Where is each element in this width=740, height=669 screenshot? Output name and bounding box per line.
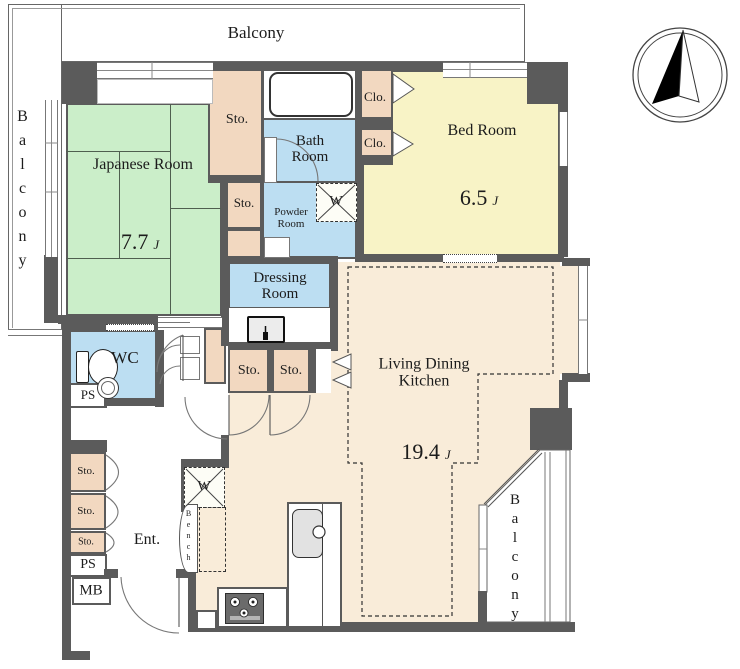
storage-ent-1-label: Sto. — [77, 465, 94, 477]
ldk-size-value: 19.4 — [401, 439, 440, 464]
powder-label-line2: Room — [274, 219, 308, 231]
floor-plan: Balcony Balcony Balcony Japanese Room 7.… — [0, 0, 740, 669]
bath-room-label: Bath Room — [292, 133, 329, 165]
balcony-left-label: Balcony — [13, 108, 31, 276]
closet-1-label: Clo. — [364, 89, 386, 105]
ent-label: Ent. — [134, 531, 160, 549]
faucet-icon — [263, 326, 268, 340]
japanese-room-size-value: 7.7 — [121, 229, 149, 254]
storage-ent-2-label: Sto. — [77, 505, 94, 517]
balcony-bottom-right — [478, 449, 570, 624]
meter-box-label: MB — [79, 583, 102, 600]
washer-powder-label: W — [329, 194, 342, 210]
pipe-space-1-label: PS — [81, 387, 95, 403]
japanese-room-label: Japanese Room — [93, 156, 193, 174]
door-triangles — [333, 74, 414, 388]
bath-label-line2: Room — [292, 149, 329, 165]
bed-room-size-value: 6.5 — [460, 185, 488, 210]
size-unit: J — [492, 193, 498, 208]
bath-label-line1: Bath — [292, 133, 329, 149]
pipe-space-2-label: PS — [80, 557, 96, 573]
storage-ent-3-label: Sto. — [78, 537, 94, 548]
bed-room-size: 6.5J — [460, 185, 498, 211]
closet-2-label: Clo. — [364, 135, 386, 151]
storage-hall-b-label: Sto. — [280, 363, 302, 379]
storage-small-label: Sto. — [234, 195, 255, 211]
dressing-room-label: Dressing Room — [253, 270, 306, 302]
dressing-label-line2: Room — [253, 286, 306, 302]
ldk-label-line2: Kitchen — [378, 373, 469, 390]
japanese-room-size: 7.7J — [121, 229, 159, 255]
washer-kitchen-label: W — [197, 479, 210, 495]
bench-label: Bench — [184, 509, 193, 564]
balcony-top-label: Balcony — [228, 23, 285, 43]
stove-burners-icon — [230, 598, 260, 621]
compass-icon — [633, 28, 727, 122]
dressing-label-line1: Dressing — [253, 270, 306, 286]
washer-x-icon — [186, 185, 355, 506]
wc-label: WC — [111, 348, 138, 368]
bed-room-label: Bed Room — [448, 122, 517, 140]
ldk-label-line1: Living Dining — [378, 356, 469, 373]
ldk-size: 19.4J — [401, 439, 450, 465]
powder-room-label: Powder Room — [274, 207, 308, 231]
ldk-label: Living Dining Kitchen — [378, 356, 469, 391]
size-unit: J — [445, 447, 451, 462]
sink-faucet-icon — [313, 526, 325, 538]
balcony-br-label: Balcony — [506, 492, 523, 625]
storage-big-label: Sto. — [226, 112, 248, 128]
storage-hall-a-label: Sto. — [238, 363, 260, 379]
size-unit: J — [153, 237, 159, 252]
